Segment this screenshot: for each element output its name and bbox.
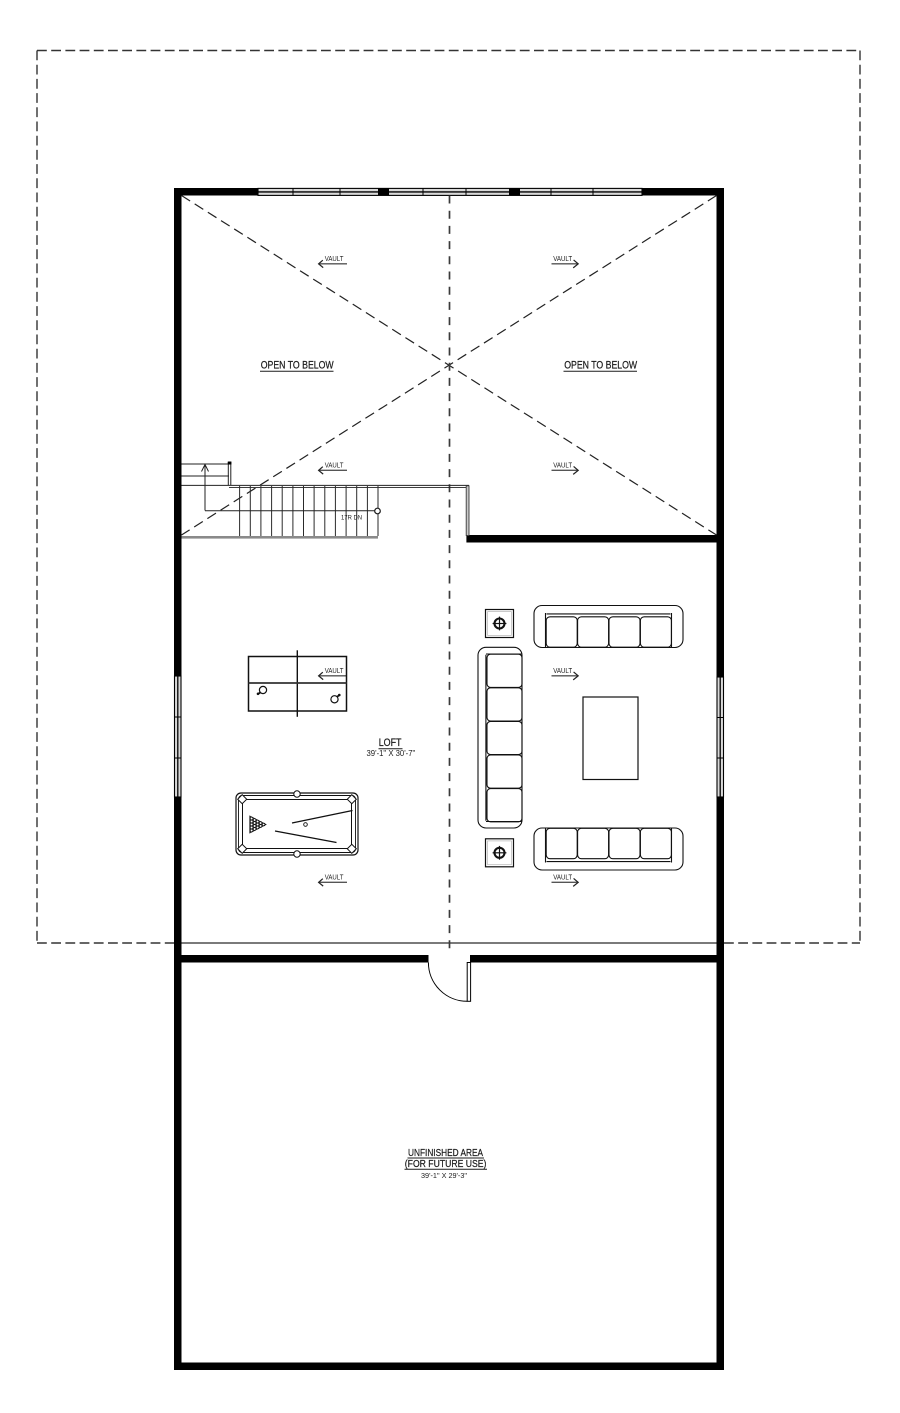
svg-text:UNFINISHED AREA: UNFINISHED AREA <box>408 1148 483 1159</box>
svg-text:VAULT: VAULT <box>325 668 344 675</box>
svg-text:17R DN: 17R DN <box>341 514 362 521</box>
svg-text:VAULT: VAULT <box>325 256 344 263</box>
svg-text:LOFT: LOFT <box>379 737 402 749</box>
svg-text:39'-1" X 30'-7": 39'-1" X 30'-7" <box>367 749 416 758</box>
svg-text:OPEN TO BELOW: OPEN TO BELOW <box>261 359 334 371</box>
svg-text:39'-1" X 29'-3": 39'-1" X 29'-3" <box>421 1171 467 1180</box>
svg-text:VAULT: VAULT <box>325 875 344 882</box>
svg-text:VAULT: VAULT <box>553 463 573 470</box>
svg-text:VAULT: VAULT <box>553 875 573 882</box>
svg-text:OPEN TO BELOW: OPEN TO BELOW <box>564 359 637 371</box>
svg-text:VAULT: VAULT <box>325 463 344 470</box>
svg-text:VAULT: VAULT <box>553 668 573 675</box>
svg-text:VAULT: VAULT <box>553 256 573 263</box>
svg-text:(FOR FUTURE USE): (FOR FUTURE USE) <box>405 1159 487 1170</box>
